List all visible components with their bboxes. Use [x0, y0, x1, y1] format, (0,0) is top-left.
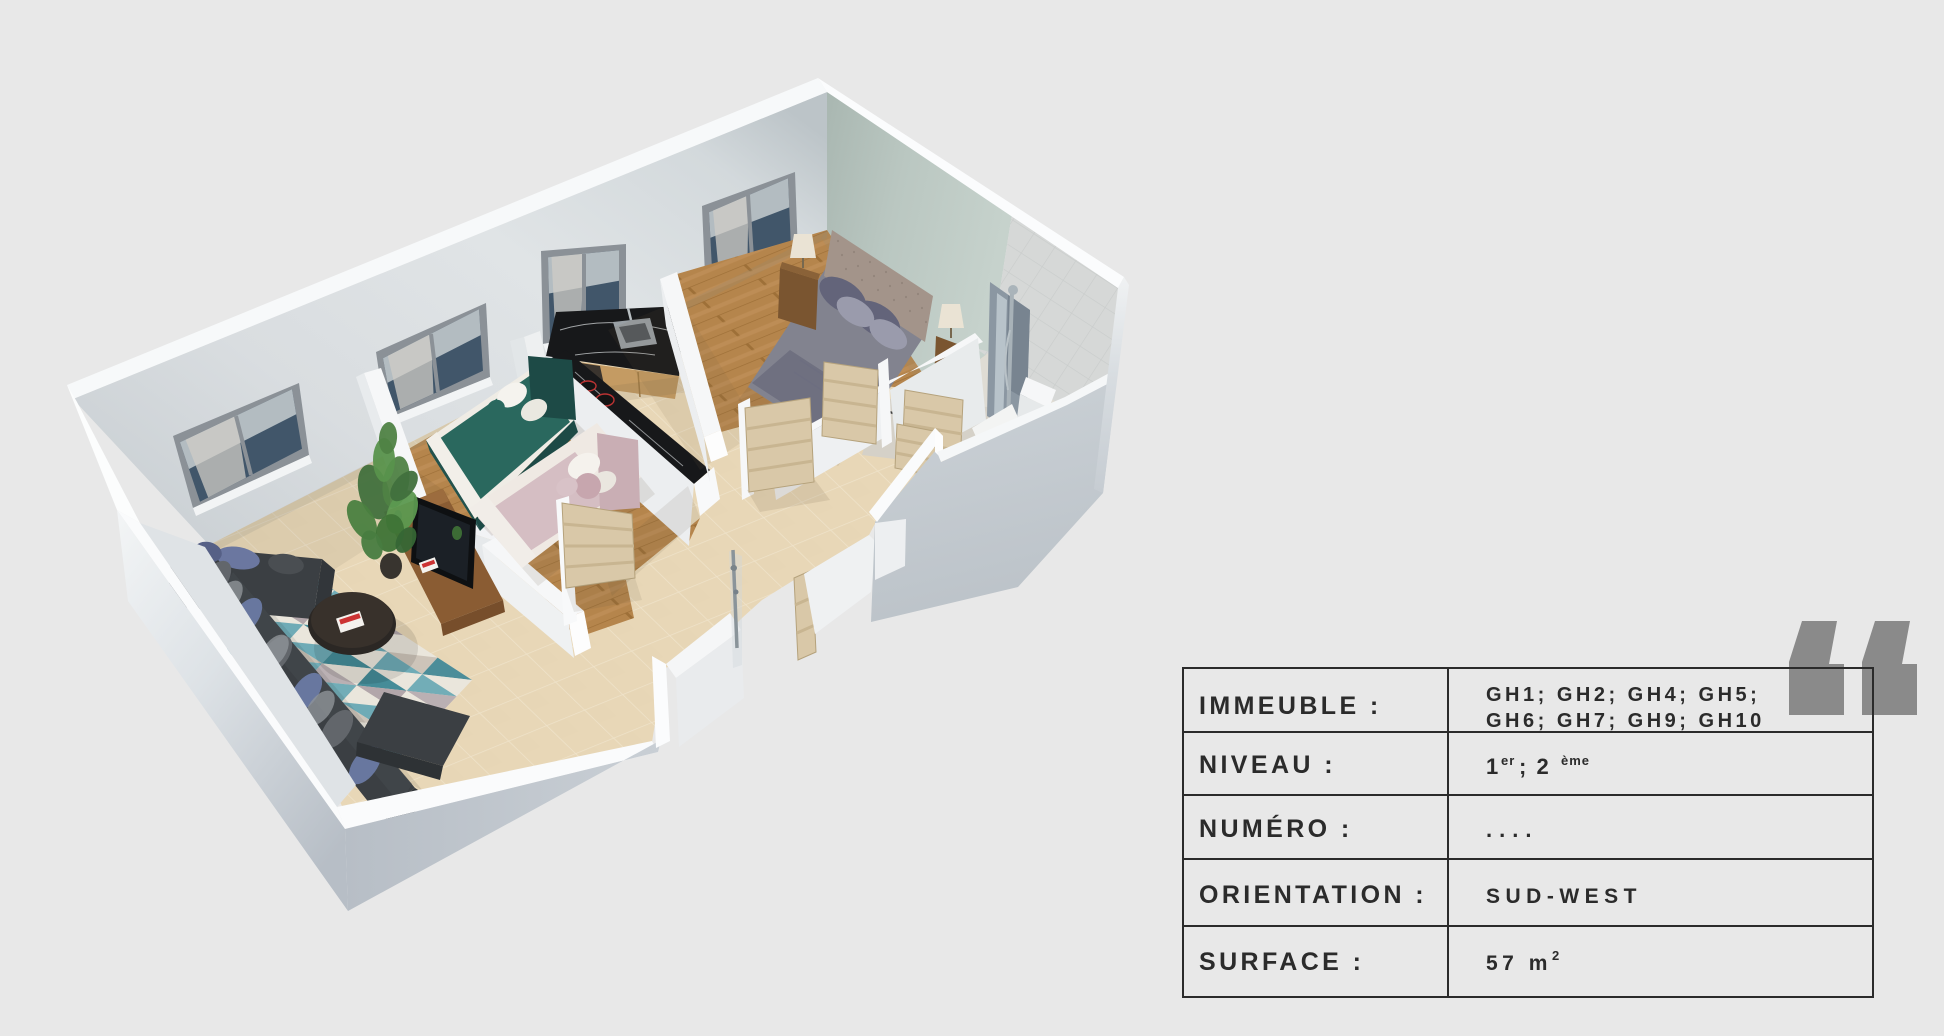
- svg-text:GH6; GH7; GH9; GH10: GH6; GH7; GH9; GH10: [1486, 710, 1765, 732]
- svg-text:ORIENTATION :: ORIENTATION :: [1199, 881, 1427, 909]
- svg-text:1: 1: [1486, 754, 1500, 779]
- svg-text:NIVEAU :: NIVEAU :: [1199, 751, 1336, 779]
- svg-text:er: er: [1501, 753, 1515, 768]
- svg-text:....: ....: [1486, 817, 1538, 842]
- svg-text:SUD-WEST: SUD-WEST: [1486, 885, 1642, 908]
- svg-text:GH1; GH2; GH4; GH5;: GH1; GH2; GH4; GH5;: [1486, 684, 1760, 706]
- svg-text:IMMEUBLE :: IMMEUBLE :: [1199, 692, 1382, 720]
- svg-text:SURFACE :: SURFACE :: [1199, 948, 1364, 976]
- svg-text:; 2: ; 2: [1519, 754, 1551, 779]
- svg-text:NUMÉRO :: NUMÉRO :: [1199, 814, 1353, 843]
- svg-text:2: 2: [1552, 948, 1559, 963]
- svg-text:57 m: 57 m: [1486, 952, 1552, 975]
- svg-text:ème: ème: [1561, 753, 1590, 768]
